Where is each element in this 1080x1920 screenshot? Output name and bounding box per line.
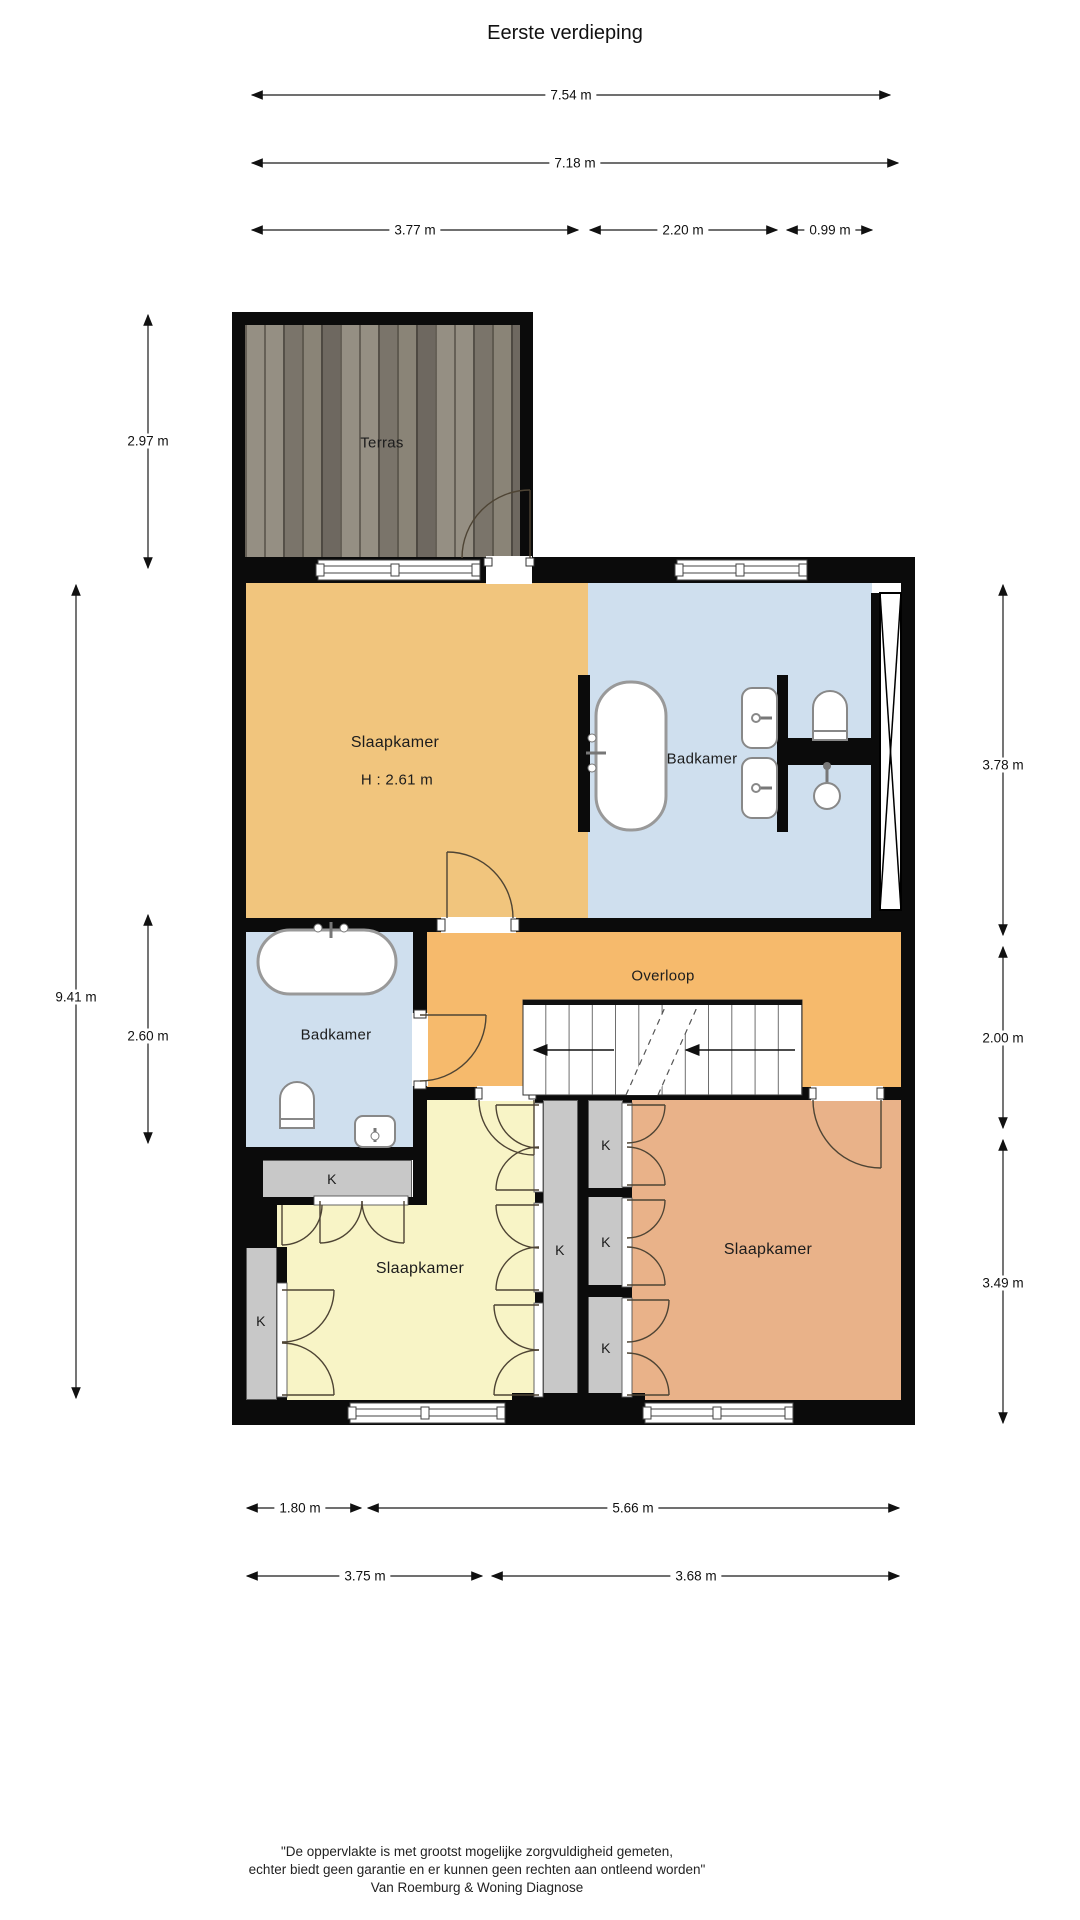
sinks-ensuite (742, 688, 777, 818)
disclaimer-line-1: "De oppervlakte is met grootst mogelijke… (117, 1843, 837, 1861)
bedroom-main-label: Slaapkamer (351, 734, 439, 752)
bathroom-main-label: Badkamer (301, 1027, 372, 1044)
floor-plan: Eerste verdieping (0, 0, 1080, 1920)
closet-label: K (601, 1340, 611, 1356)
bedroom-yellow-label: Slaapkamer (376, 1260, 464, 1278)
dim-bottom-c: 3.75 m (339, 1569, 390, 1584)
disclaimer: "De oppervlakte is met grootst mogelijke… (117, 1843, 837, 1897)
bathtub-ensuite (586, 682, 666, 830)
dim-right-top: 3.78 m (977, 758, 1028, 773)
closet-label: K (555, 1242, 565, 1258)
closet-label: K (327, 1171, 337, 1187)
toilet-main (280, 1082, 314, 1128)
dim-top-b: 2.20 m (657, 223, 708, 238)
plan-graphics (0, 0, 1080, 1920)
closet-label: K (256, 1313, 266, 1329)
shower-head (814, 762, 840, 809)
bathtub-main (258, 922, 396, 994)
bedroom-main-height-label: H : 2.61 m (361, 772, 433, 789)
dim-right-bottom: 3.49 m (977, 1276, 1028, 1291)
bedroom-salmon-label: Slaapkamer (724, 1241, 812, 1259)
terras-label: Terras (360, 435, 403, 452)
closet-thresholds (277, 1103, 632, 1397)
sink-main (355, 1116, 395, 1147)
staircase (523, 1000, 802, 1095)
dim-top-a: 3.77 m (389, 223, 440, 238)
dim-left-total: 9.41 m (50, 990, 101, 1005)
disclaimer-line-3: Van Roemburg & Woning Diagnose (117, 1879, 837, 1897)
disclaimer-line-2: echter biedt geen garantie en er kunnen … (117, 1861, 837, 1879)
dim-top-inner: 7.18 m (549, 156, 600, 171)
closet-label: K (601, 1234, 611, 1250)
windows (316, 560, 807, 1423)
dim-left-bath: 2.60 m (122, 1029, 173, 1044)
void-shaft (880, 593, 901, 910)
bathroom-ensuite-label: Badkamer (667, 751, 738, 768)
dim-top-c: 0.99 m (804, 223, 855, 238)
dim-bottom-d: 3.68 m (670, 1569, 721, 1584)
dim-right-mid: 2.00 m (977, 1031, 1028, 1046)
dim-bottom-b: 5.66 m (607, 1501, 658, 1516)
dim-bottom-a: 1.80 m (274, 1501, 325, 1516)
dim-left-terras: 2.97 m (122, 434, 173, 449)
closet-label: K (601, 1137, 611, 1153)
toilet-ensuite (813, 691, 847, 740)
dim-top-total: 7.54 m (545, 88, 596, 103)
landing-label: Overloop (631, 968, 694, 985)
